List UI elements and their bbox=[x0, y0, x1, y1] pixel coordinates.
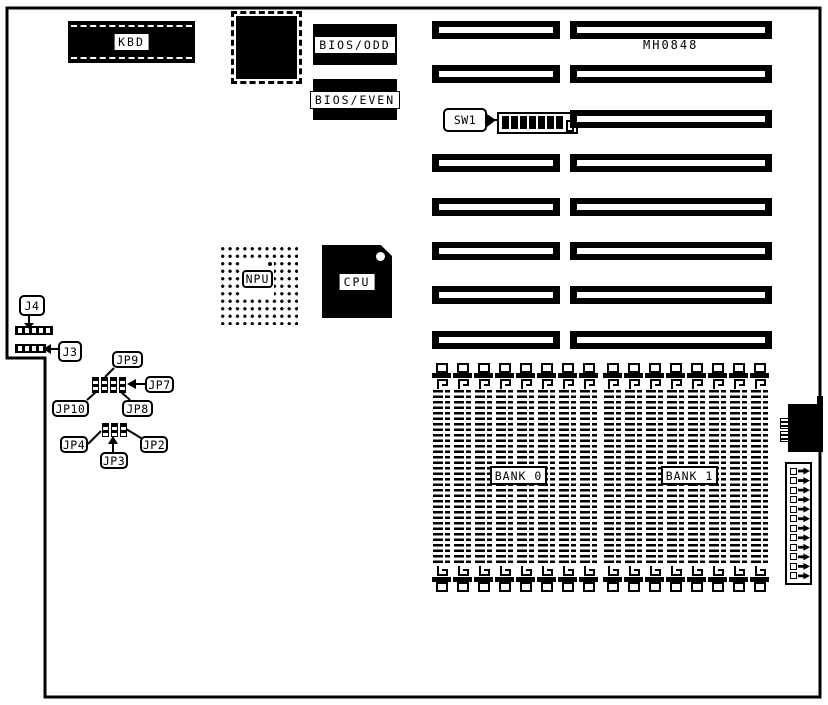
expansion-slot-contact bbox=[439, 292, 553, 298]
simm-socket bbox=[558, 363, 577, 592]
power-pin-row bbox=[787, 477, 810, 484]
simm-tab bbox=[457, 363, 469, 373]
jp4-label: JP4 bbox=[60, 436, 88, 453]
simm-tab bbox=[712, 582, 724, 592]
power-pin-row bbox=[787, 496, 810, 503]
power-pin-row bbox=[787, 468, 810, 475]
j3-label: J3 bbox=[58, 341, 82, 362]
simm-latch-icon bbox=[477, 378, 491, 389]
expansion-slot bbox=[432, 331, 560, 349]
simm-latch-icon bbox=[732, 378, 746, 389]
simm-latch-icon bbox=[561, 566, 575, 577]
expansion-slot-contact bbox=[577, 204, 765, 210]
expansion-slot-contact bbox=[577, 27, 765, 33]
expansion-slot-contact bbox=[439, 248, 553, 254]
pin bbox=[32, 346, 36, 351]
bios-odd-label: BIOS/ODD bbox=[314, 36, 395, 54]
simm-tab bbox=[520, 363, 532, 373]
jp9-label: JP9 bbox=[112, 351, 143, 368]
simm-tab bbox=[754, 582, 766, 592]
board-model-number: MH0848 bbox=[643, 38, 698, 52]
simm-tab bbox=[541, 363, 553, 373]
sw1-dip-switch bbox=[497, 112, 578, 134]
simm-tab bbox=[457, 582, 469, 592]
power-pin-socket bbox=[790, 487, 797, 494]
dip-switch-on bbox=[529, 116, 536, 129]
expansion-slot bbox=[432, 286, 560, 304]
simm-tab bbox=[499, 582, 511, 592]
dip-switch-on bbox=[547, 116, 554, 129]
simm-tab bbox=[562, 363, 574, 373]
pin bbox=[32, 328, 36, 333]
expansion-slot-contact bbox=[439, 71, 553, 77]
simm-latch-icon bbox=[540, 378, 554, 389]
dip-switch-on bbox=[511, 116, 518, 129]
expansion-slot bbox=[570, 286, 772, 304]
simm-tab bbox=[670, 582, 682, 592]
power-pin-socket bbox=[790, 553, 797, 560]
simm-latch-icon bbox=[477, 566, 491, 577]
simm-contacts bbox=[625, 390, 642, 565]
bank0-label: BANK 0 bbox=[490, 466, 547, 485]
simm-tab bbox=[607, 363, 619, 373]
jp7-label: JP7 bbox=[145, 376, 174, 393]
power-pin-socket bbox=[790, 496, 797, 503]
jp2-label: JP2 bbox=[140, 436, 168, 453]
simm-socket bbox=[579, 363, 598, 592]
jumper bbox=[111, 423, 118, 437]
power-pin-socket bbox=[790, 468, 797, 475]
simm-tab bbox=[583, 363, 595, 373]
power-pin-row bbox=[787, 544, 810, 551]
qfp-chip bbox=[236, 16, 297, 79]
simm-tab bbox=[541, 582, 553, 592]
simm-tab bbox=[670, 363, 682, 373]
power-pin-icon bbox=[798, 563, 810, 570]
power-pin-socket bbox=[790, 572, 797, 579]
sw1-label: SW1 bbox=[443, 108, 487, 132]
j3-pin-header bbox=[15, 344, 46, 353]
simm-latch-icon bbox=[582, 566, 596, 577]
power-pin-socket bbox=[790, 506, 797, 513]
simm-latch-icon bbox=[753, 378, 767, 389]
expansion-slot-contact bbox=[577, 337, 765, 343]
power-pin-row bbox=[787, 506, 810, 513]
simm-tab bbox=[754, 363, 766, 373]
power-pin-row bbox=[787, 572, 810, 579]
expansion-slot-contact bbox=[439, 27, 553, 33]
pin bbox=[46, 328, 50, 333]
power-pin-row bbox=[787, 563, 810, 570]
simm-contacts bbox=[580, 390, 597, 565]
expansion-slot-contact bbox=[577, 160, 765, 166]
jumper bbox=[101, 377, 108, 393]
din-connector bbox=[788, 404, 823, 452]
power-pin-socket bbox=[790, 563, 797, 570]
expansion-slot bbox=[432, 65, 560, 83]
power-pin-icon bbox=[798, 477, 810, 484]
jp8-label: JP8 bbox=[122, 400, 153, 417]
pin bbox=[18, 328, 22, 333]
simm-tab bbox=[499, 363, 511, 373]
simm-tab bbox=[649, 363, 661, 373]
expansion-slot bbox=[570, 154, 772, 172]
din-connector-tab bbox=[780, 431, 789, 442]
power-pin-row bbox=[787, 515, 810, 522]
motherboard-diagram: KBD BIOS/ODD BIOS/EVEN MH0848 SW1 NPU CP… bbox=[0, 0, 828, 705]
npu-socket: NPU bbox=[217, 243, 298, 325]
power-pin-icon bbox=[798, 487, 810, 494]
jumper bbox=[119, 377, 126, 393]
power-pin-socket bbox=[790, 534, 797, 541]
jumper-block-b bbox=[102, 423, 127, 437]
expansion-slot bbox=[570, 198, 772, 216]
jumper bbox=[92, 377, 99, 393]
expansion-slot-contact bbox=[439, 337, 553, 343]
j4-label: J4 bbox=[19, 295, 45, 316]
cpu-pin1-dot-icon bbox=[376, 252, 385, 261]
simm-tab bbox=[562, 582, 574, 592]
power-pin-icon bbox=[798, 553, 810, 560]
simm-latch-icon bbox=[690, 566, 704, 577]
simm-latch-icon bbox=[498, 566, 512, 577]
simm-tab bbox=[520, 582, 532, 592]
simm-latch-icon bbox=[582, 378, 596, 389]
bios-even-label: BIOS/EVEN bbox=[310, 91, 400, 109]
jumper bbox=[102, 423, 109, 437]
simm-tab bbox=[691, 363, 703, 373]
dip-switch-on bbox=[502, 116, 509, 129]
cpu-chip: CPU bbox=[322, 245, 392, 318]
simm-latch-icon bbox=[669, 378, 683, 389]
simm-latch-icon bbox=[540, 566, 554, 577]
expansion-slot-contact bbox=[577, 292, 765, 298]
simm-contacts bbox=[454, 390, 471, 565]
simm-latch-icon bbox=[711, 378, 725, 389]
power-pin-icon bbox=[798, 515, 810, 522]
expansion-slot bbox=[570, 21, 772, 39]
simm-latch-icon bbox=[711, 566, 725, 577]
simm-latch-icon bbox=[519, 378, 533, 389]
simm-tab bbox=[583, 582, 595, 592]
dip-switch-on bbox=[556, 116, 563, 129]
simm-latch-icon bbox=[669, 566, 683, 577]
jp3-label: JP3 bbox=[100, 452, 128, 469]
simm-socket bbox=[624, 363, 643, 592]
simm-tab bbox=[733, 582, 745, 592]
expansion-slot-contact bbox=[577, 116, 765, 122]
pin bbox=[39, 328, 43, 333]
pin bbox=[25, 328, 29, 333]
simm-tab bbox=[607, 582, 619, 592]
jumper bbox=[110, 377, 117, 393]
bios-even-chip: BIOS/EVEN bbox=[313, 79, 397, 120]
simm-socket bbox=[750, 363, 769, 592]
simm-latch-icon bbox=[753, 566, 767, 577]
expansion-slot-contact bbox=[439, 160, 553, 166]
expansion-slot bbox=[570, 65, 772, 83]
simm-latch-icon bbox=[648, 378, 662, 389]
simm-latch-icon bbox=[606, 566, 620, 577]
expansion-slot bbox=[570, 110, 772, 128]
power-pin-icon bbox=[798, 544, 810, 551]
expansion-slot-contact bbox=[577, 248, 765, 254]
npu-socket-center: NPU bbox=[241, 262, 274, 296]
bios-odd-chip: BIOS/ODD bbox=[313, 24, 397, 65]
simm-tab bbox=[733, 363, 745, 373]
simm-latch-icon bbox=[435, 566, 449, 577]
pin bbox=[18, 346, 22, 351]
jumper bbox=[120, 423, 127, 437]
expansion-slot-contact bbox=[439, 204, 553, 210]
cpu-label: CPU bbox=[340, 274, 375, 290]
power-pin-icon bbox=[798, 525, 810, 532]
bank1-label: BANK 1 bbox=[661, 466, 718, 485]
simm-latch-icon bbox=[456, 566, 470, 577]
dip-switch-on bbox=[538, 116, 545, 129]
j4-pin-header bbox=[15, 326, 53, 335]
power-pin-row bbox=[787, 553, 810, 560]
power-pin-row bbox=[787, 525, 810, 532]
expansion-slot bbox=[432, 21, 560, 39]
simm-latch-icon bbox=[627, 378, 641, 389]
dip-switch-on bbox=[520, 116, 527, 129]
power-pin-icon bbox=[798, 496, 810, 503]
simm-contacts bbox=[751, 390, 768, 565]
expansion-slot bbox=[432, 242, 560, 260]
keyboard-connector: KBD bbox=[68, 21, 195, 63]
simm-latch-icon bbox=[519, 566, 533, 577]
power-pin-socket bbox=[790, 515, 797, 522]
power-pin-icon bbox=[798, 572, 810, 579]
simm-tab bbox=[478, 582, 490, 592]
power-pin-socket bbox=[790, 477, 797, 484]
simm-latch-icon bbox=[435, 378, 449, 389]
jp10-label: JP10 bbox=[52, 400, 89, 417]
simm-contacts bbox=[604, 390, 621, 565]
power-pin-icon bbox=[798, 506, 810, 513]
simm-latch-icon bbox=[456, 378, 470, 389]
simm-tab bbox=[628, 582, 640, 592]
expansion-slot bbox=[432, 154, 560, 172]
simm-socket bbox=[432, 363, 451, 592]
kbd-label: KBD bbox=[114, 34, 149, 50]
simm-socket bbox=[729, 363, 748, 592]
expansion-slot-contact bbox=[577, 71, 765, 77]
jumper-block-a bbox=[92, 377, 126, 393]
simm-tab bbox=[478, 363, 490, 373]
simm-socket bbox=[603, 363, 622, 592]
expansion-slot bbox=[570, 242, 772, 260]
din-connector-step bbox=[817, 396, 823, 405]
power-pin-row bbox=[787, 534, 810, 541]
power-pin-row bbox=[787, 487, 810, 494]
simm-latch-icon bbox=[732, 566, 746, 577]
simm-latch-icon bbox=[627, 566, 641, 577]
npu-label: NPU bbox=[242, 270, 274, 288]
simm-contacts bbox=[559, 390, 576, 565]
simm-latch-icon bbox=[606, 378, 620, 389]
simm-tab bbox=[436, 582, 448, 592]
power-connector bbox=[785, 462, 812, 585]
din-connector-tab bbox=[780, 418, 789, 429]
simm-tab bbox=[649, 582, 661, 592]
pin1-dot-icon bbox=[268, 262, 272, 266]
expansion-slot bbox=[432, 198, 560, 216]
simm-contacts bbox=[730, 390, 747, 565]
pin bbox=[39, 346, 43, 351]
simm-contacts bbox=[433, 390, 450, 565]
simm-socket bbox=[453, 363, 472, 592]
simm-latch-icon bbox=[498, 378, 512, 389]
simm-latch-icon bbox=[690, 378, 704, 389]
power-pin-socket bbox=[790, 525, 797, 532]
pin bbox=[25, 346, 29, 351]
simm-latch-icon bbox=[561, 378, 575, 389]
simm-tab bbox=[691, 582, 703, 592]
simm-tab bbox=[436, 363, 448, 373]
simm-latch-icon bbox=[648, 566, 662, 577]
power-pin-icon bbox=[798, 534, 810, 541]
simm-tab bbox=[712, 363, 724, 373]
expansion-slot bbox=[570, 331, 772, 349]
power-pin-icon bbox=[798, 468, 810, 475]
simm-tab bbox=[628, 363, 640, 373]
power-pin-socket bbox=[790, 544, 797, 551]
